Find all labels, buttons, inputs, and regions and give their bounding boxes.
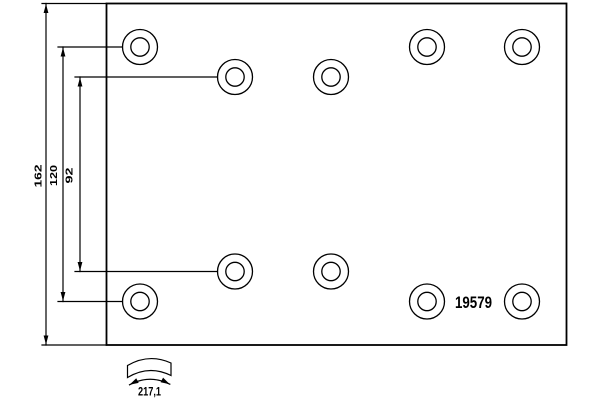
- rivet-hole-circle: [418, 292, 436, 310]
- rivet-hole-circle: [513, 292, 531, 310]
- rivet-hole-circle: [131, 38, 149, 56]
- arrowhead-120-bottom: [61, 292, 66, 301]
- rivet-hole-circle: [123, 30, 158, 65]
- rivet-hole-circle: [322, 68, 340, 86]
- rivet-hole-circle: [226, 68, 244, 86]
- rivet-hole-circle: [218, 254, 253, 289]
- technical-drawing: 162 120 92 19579 217,1: [0, 0, 600, 400]
- arc-band-symbol: [128, 359, 172, 378]
- rivet-hole-circle: [322, 262, 340, 280]
- rivet-hole-circle: [131, 292, 149, 310]
- plate-outline: [107, 4, 567, 346]
- arrowhead-92-top: [78, 78, 83, 87]
- arrowhead-162-top: [44, 4, 49, 13]
- rivet-hole-circle: [226, 262, 244, 280]
- arc-arrowhead-right: [161, 378, 171, 387]
- rivet-hole-circle: [505, 30, 540, 65]
- arrowhead-162-bottom: [44, 336, 49, 345]
- rivet-hole-circle: [410, 30, 445, 65]
- dimension-label-92: 92: [64, 167, 76, 183]
- rivet-hole-circle: [418, 38, 436, 56]
- dimension-label-120: 120: [48, 165, 60, 186]
- rivet-hole-circle: [123, 284, 158, 319]
- rivet-hole-circle: [218, 60, 253, 95]
- rivet-hole-circle: [314, 60, 349, 95]
- arrowhead-92-bottom: [78, 262, 83, 271]
- arc-width-label: 217,1: [138, 385, 161, 399]
- rivet-hole-circle: [513, 38, 531, 56]
- arrowhead-120-top: [61, 48, 66, 57]
- holes-group: [123, 30, 540, 320]
- rivet-hole-circle: [410, 284, 445, 319]
- rivet-hole-circle: [314, 254, 349, 289]
- rivet-hole-circle: [505, 284, 540, 319]
- dimension-label-162: 162: [33, 164, 45, 187]
- part-number: 19579: [455, 293, 492, 312]
